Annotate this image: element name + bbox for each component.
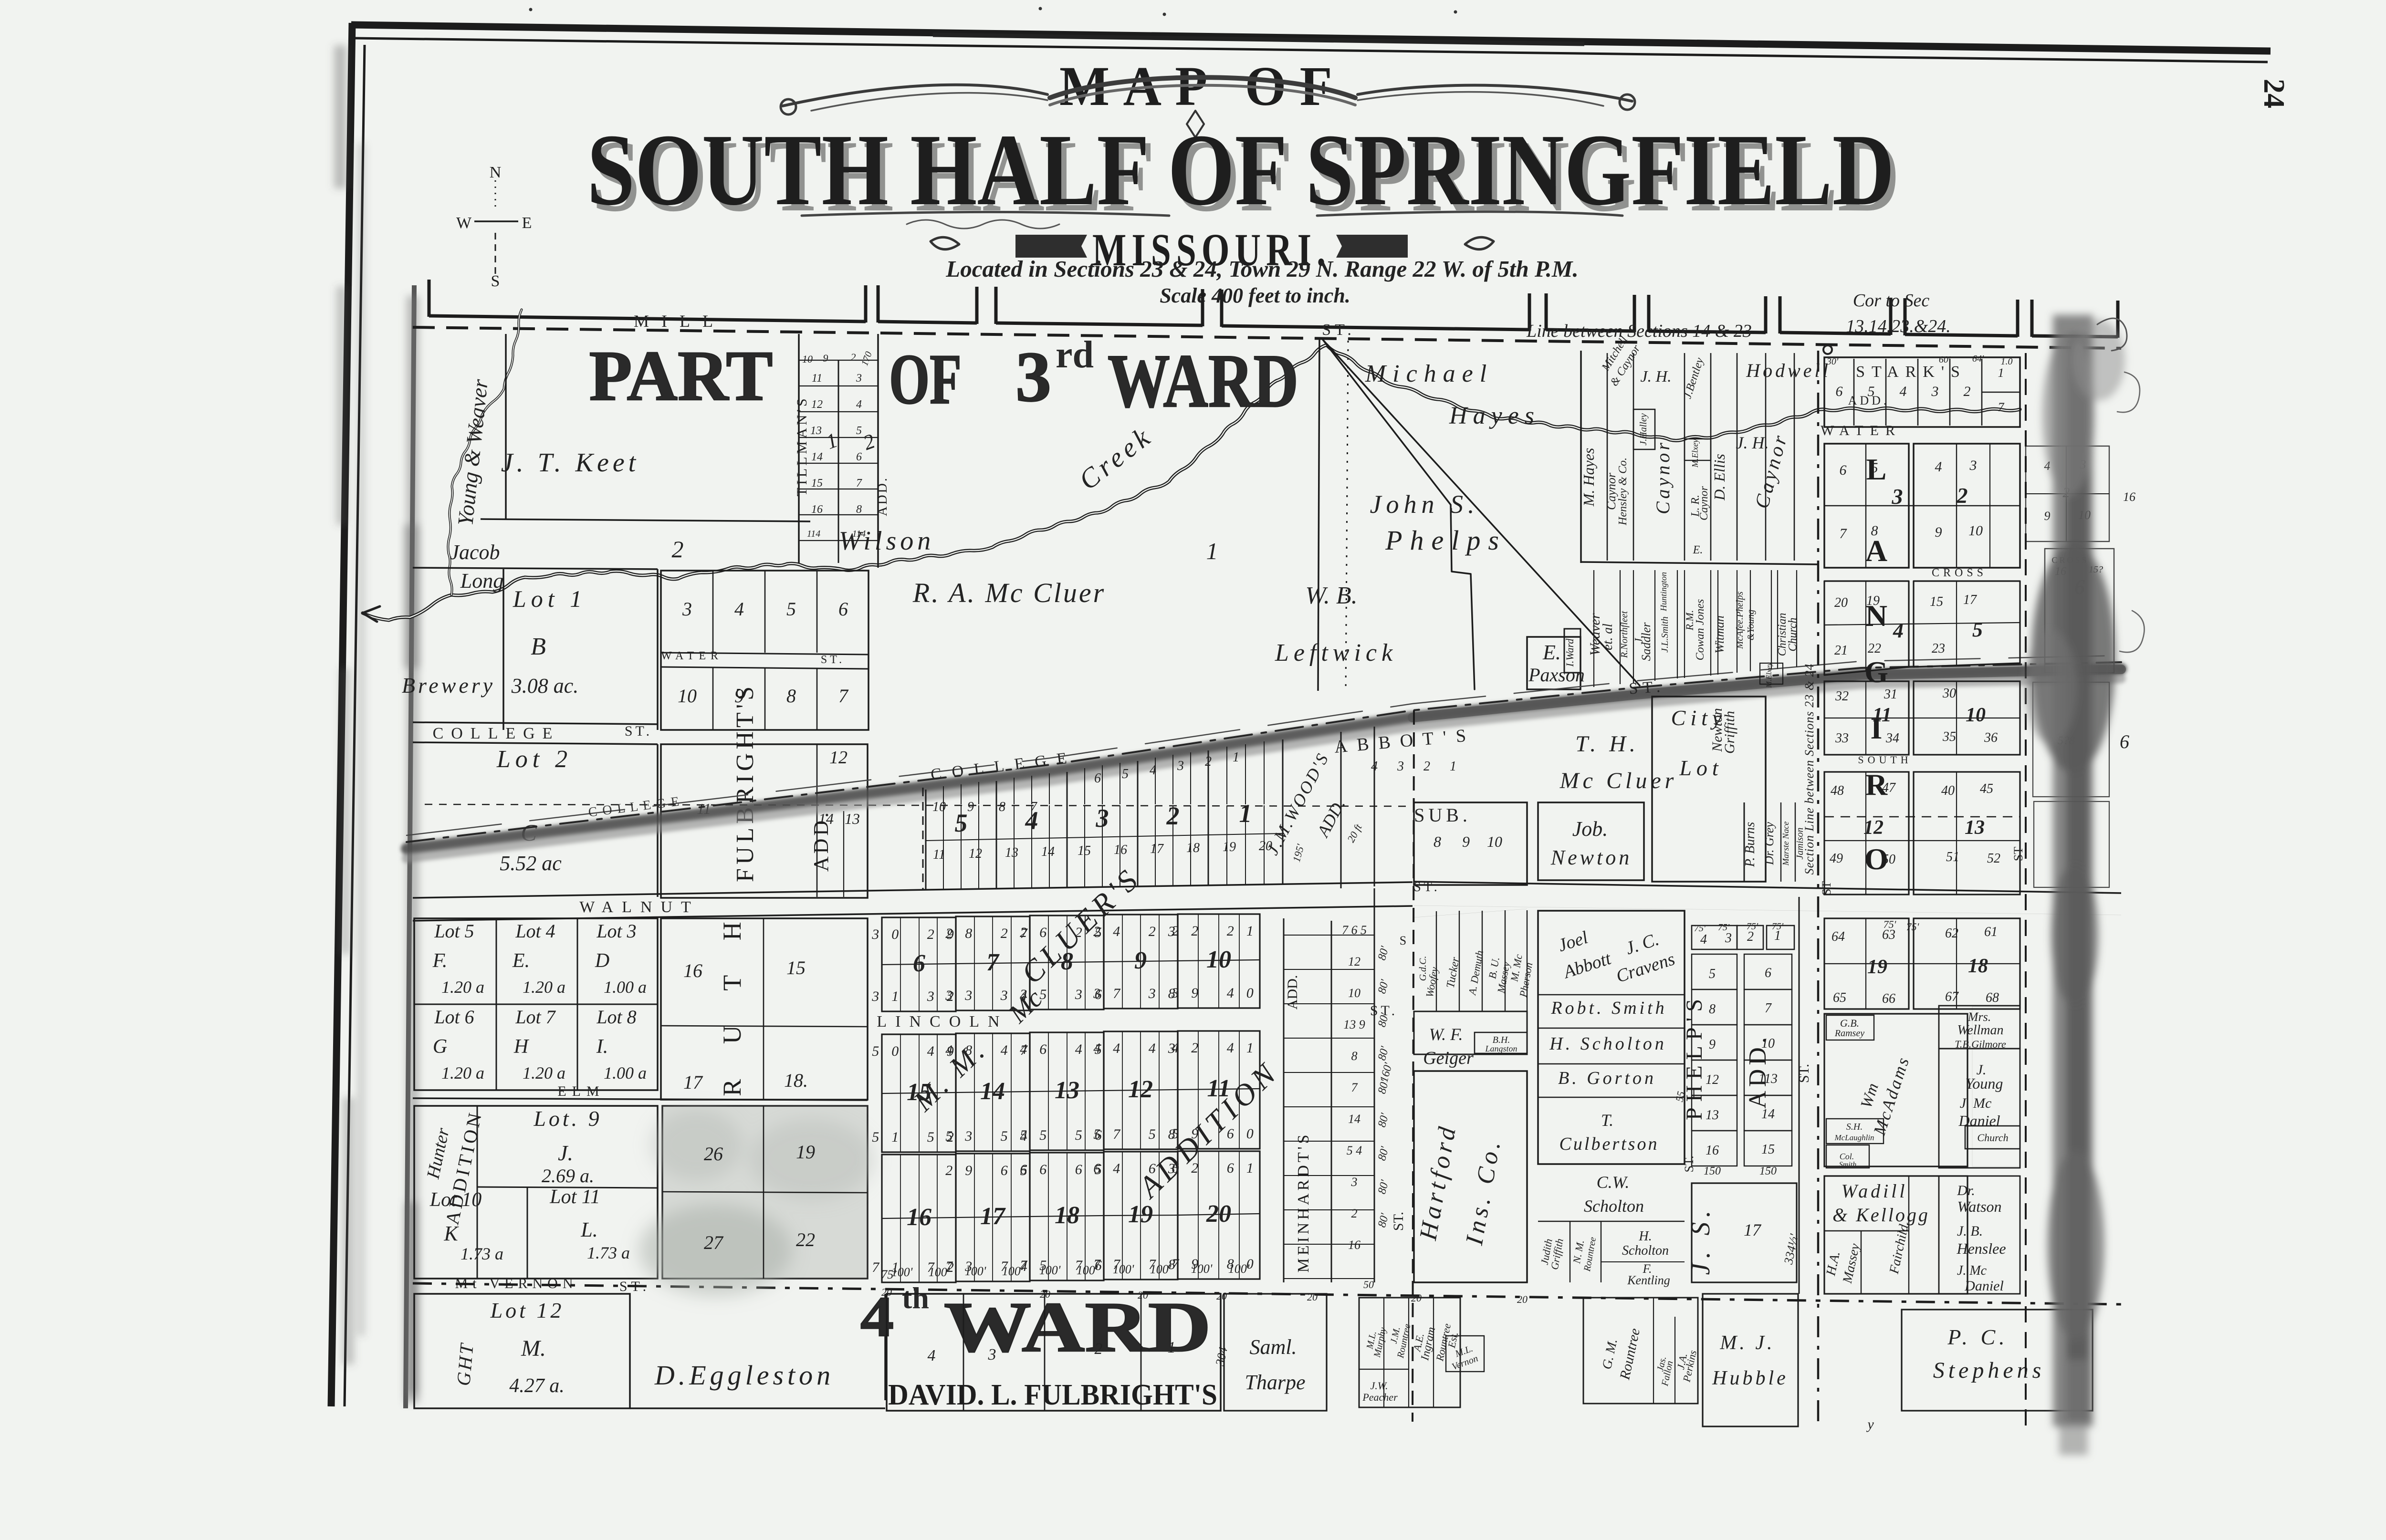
svg-text:G: G — [433, 1036, 447, 1058]
svg-text:27: 27 — [704, 1232, 724, 1253]
svg-text:Wellman: Wellman — [1957, 1023, 2004, 1038]
svg-text:9: 9 — [1935, 524, 1942, 540]
svg-text:R.Northfleet: R.Northfleet — [1619, 611, 1630, 658]
svg-text:20: 20 — [1517, 1293, 1528, 1305]
svg-text:Hensley & Co.: Hensley & Co. — [1617, 458, 1629, 526]
svg-text:Lot 2: Lot 2 — [496, 746, 572, 773]
svg-text:MILL: MILL — [634, 312, 725, 331]
svg-text:10: 10 — [1968, 523, 1983, 539]
svg-text:14: 14 — [811, 451, 823, 463]
svg-text:4: 4 — [1371, 759, 1378, 774]
svg-text:Kentling: Kentling — [1627, 1273, 1670, 1287]
svg-text:36: 36 — [1984, 730, 1998, 745]
svg-text:J. T. Keet: J. T. Keet — [501, 448, 639, 478]
svg-text:26: 26 — [704, 1143, 723, 1165]
svg-text:14: 14 — [1348, 1112, 1360, 1126]
svg-text:ST: ST — [1820, 881, 1833, 895]
svg-text:100': 100' — [1113, 1262, 1134, 1276]
svg-text:Col.: Col. — [1840, 1152, 1854, 1161]
svg-text:49: 49 — [1830, 851, 1843, 866]
svg-text:CROSS: CROSS — [1932, 567, 1987, 579]
svg-text:75': 75' — [1718, 922, 1730, 933]
svg-text:E.: E. — [1542, 641, 1561, 664]
svg-text:4: 4 — [1935, 459, 1942, 475]
svg-text:Dr.: Dr. — [1957, 1183, 1975, 1198]
svg-text:6: 6 — [1840, 462, 1847, 478]
svg-text:5: 5 — [1122, 767, 1129, 781]
svg-text:4: 4 — [856, 398, 862, 411]
svg-text:Cor to Sec: Cor to Sec — [1853, 291, 1930, 311]
svg-text:7: 7 — [838, 685, 849, 707]
svg-text:Mc Cluer: Mc Cluer — [1559, 768, 1678, 793]
svg-text:9: 9 — [1462, 833, 1470, 850]
svg-text:Lot 6: Lot 6 — [434, 1006, 474, 1028]
svg-text:6: 6 — [1094, 771, 1101, 786]
svg-text:75': 75' — [1906, 921, 1919, 933]
svg-text:2: 2 — [672, 536, 684, 562]
svg-text:9: 9 — [2044, 509, 2051, 523]
svg-text:ADD.: ADD. — [1744, 1033, 1771, 1109]
svg-text:8: 8 — [856, 503, 862, 516]
svg-text:10: 10 — [1966, 704, 1986, 726]
svg-text:TILLMAN'S: TILLMAN'S — [794, 395, 810, 496]
svg-text:&Young: &Young — [1746, 610, 1756, 641]
svg-text:Peacher: Peacher — [1362, 1391, 1398, 1403]
svg-text:ADD.: ADD. — [1285, 975, 1300, 1010]
svg-text:K: K — [443, 1222, 459, 1245]
svg-text:66: 66 — [1882, 991, 1895, 1006]
svg-text:J. Mc: J. Mc — [1957, 1263, 1987, 1278]
svg-text:8: 8 — [1434, 833, 1441, 850]
svg-text:1: 1 — [1450, 759, 1456, 774]
svg-text:16: 16 — [907, 1204, 931, 1231]
svg-text:ELM: ELM — [557, 1083, 605, 1099]
svg-text:4: 4 — [928, 1347, 936, 1364]
svg-text:D.Eggleston: D.Eggleston — [654, 1360, 834, 1391]
svg-text:E: E — [522, 214, 532, 232]
svg-text:Wadill: Wadill — [1842, 1180, 1908, 1202]
svg-text:Church: Church — [1787, 617, 1799, 651]
svg-text:5: 5 — [786, 598, 796, 620]
svg-text:ST.: ST. — [1796, 1064, 1812, 1083]
svg-text:SOUTH HALF OF SPRINGFIELD: SOUTH HALF OF SPRINGFIELD — [587, 113, 1894, 227]
svg-text:1: 1 — [1998, 366, 2004, 380]
svg-text:1.20 a: 1.20 a — [441, 1063, 484, 1082]
svg-text:McAfee.Phelps: McAfee.Phelps — [1735, 592, 1745, 650]
svg-text:1.20 a: 1.20 a — [523, 978, 565, 997]
svg-text:3: 3 — [1969, 458, 1977, 473]
svg-text:I.: I. — [596, 1036, 608, 1058]
svg-text:ST: ST — [2011, 847, 2025, 861]
svg-text:MEINHARDT'S: MEINHARDT'S — [1295, 1132, 1312, 1272]
svg-text:PART: PART — [589, 336, 773, 416]
svg-text:C.W.: C.W. — [1597, 1173, 1630, 1192]
svg-text:E.: E. — [1693, 544, 1703, 556]
svg-text:3: 3 — [988, 1346, 996, 1363]
svg-text:10: 10 — [678, 685, 697, 707]
svg-text:15: 15 — [1761, 1142, 1775, 1157]
svg-text:13: 13 — [810, 425, 822, 437]
svg-text:Young: Young — [1966, 1075, 2003, 1092]
svg-text:15: 15 — [811, 477, 823, 489]
svg-text:Culbertson: Culbertson — [1559, 1134, 1659, 1154]
svg-text:16: 16 — [2123, 490, 2135, 504]
svg-text:100': 100' — [1228, 1262, 1250, 1276]
svg-text:Jacob: Jacob — [450, 541, 500, 564]
svg-text:12: 12 — [1706, 1072, 1719, 1087]
svg-text:3: 3 — [1015, 337, 1051, 416]
svg-text:Lot 4: Lot 4 — [515, 920, 555, 942]
svg-text:ADD.: ADD. — [875, 476, 890, 516]
svg-text:19: 19 — [796, 1141, 815, 1163]
svg-text:GHT: GHT — [452, 1341, 478, 1387]
svg-text:M. J.: M. J. — [1719, 1332, 1775, 1354]
svg-text:5 4: 5 4 — [1347, 1144, 1362, 1157]
svg-text:17: 17 — [1963, 593, 1977, 607]
svg-text:61: 61 — [1984, 925, 1998, 939]
svg-text:7: 7 — [986, 949, 1000, 976]
svg-text:H: H — [513, 1036, 530, 1058]
svg-text:FULBRIGHT'S: FULBRIGHT'S — [732, 683, 759, 882]
svg-text:64: 64 — [1831, 929, 1845, 944]
svg-text:2: 2 — [1957, 483, 1968, 508]
svg-text:7: 7 — [1998, 400, 2005, 414]
svg-text:John S.: John S. — [1370, 490, 1479, 519]
svg-text:H.: H. — [1638, 1229, 1652, 1244]
svg-text:6: 6 — [1836, 384, 1843, 399]
svg-text:G: G — [1864, 655, 1888, 689]
svg-text:42 41: 42 41 — [1172, 1040, 1266, 1056]
svg-text:6: 6 — [913, 950, 925, 977]
svg-text:Scale 400 feet to inch.: Scale 400 feet to inch. — [1160, 284, 1350, 307]
svg-text:WARD: WARD — [1108, 338, 1298, 423]
svg-text:22: 22 — [1868, 641, 1881, 656]
svg-text:12: 12 — [829, 748, 848, 768]
svg-text:Hodwell: Hodwell — [1746, 360, 1831, 381]
svg-text:Mrs.: Mrs. — [1967, 1010, 1991, 1024]
svg-text:2: 2 — [1423, 759, 1430, 774]
svg-text:51: 51 — [1946, 850, 1959, 864]
svg-text:WALNUT: WALNUT — [579, 898, 700, 916]
svg-text:5: 5 — [1709, 967, 1716, 981]
svg-text:9: 9 — [823, 352, 828, 364]
svg-text:Henslee: Henslee — [1956, 1240, 2006, 1257]
svg-text:Lot 1: Lot 1 — [513, 585, 586, 612]
svg-text:Scholton: Scholton — [1622, 1243, 1669, 1258]
svg-text:Dr. Grey: Dr. Grey — [1762, 822, 1776, 865]
svg-text:Lot 8: Lot 8 — [596, 1006, 636, 1028]
svg-text:35: 35 — [1942, 729, 1956, 744]
svg-text:10: 10 — [1348, 986, 1360, 1000]
svg-text:68: 68 — [1986, 990, 1999, 1005]
svg-text:B. Gorton: B. Gorton — [1558, 1068, 1656, 1088]
svg-text:30: 30 — [1942, 686, 1956, 701]
svg-text:9: 9 — [1134, 947, 1147, 974]
svg-text:Watson: Watson — [1957, 1198, 2001, 1215]
svg-text:75': 75' — [1694, 923, 1706, 934]
svg-text:R. A. Mc Cluer: R. A. Mc Cluer — [912, 577, 1106, 608]
svg-text:114: 114 — [807, 529, 821, 539]
svg-text:100': 100' — [965, 1264, 986, 1278]
svg-text:1.0: 1.0 — [2001, 356, 2013, 367]
svg-text:2: 2 — [1205, 754, 1212, 769]
svg-text:Lot 11: Lot 11 — [549, 1186, 600, 1208]
svg-text:Line between Sections 14 & 23: Line between Sections 14 & 23 — [1526, 321, 1752, 341]
svg-text:B: B — [531, 633, 546, 660]
svg-text:P. Burns: P. Burns — [1743, 822, 1758, 867]
svg-text:1.73 a: 1.73 a — [460, 1244, 503, 1263]
svg-text:4: 4 — [1893, 619, 1904, 642]
svg-text:ST.: ST. — [1322, 321, 1355, 339]
svg-text:J. Mc: J. Mc — [1960, 1095, 1992, 1111]
svg-text:150: 150 — [1704, 1165, 1721, 1177]
svg-text:34: 34 — [1885, 731, 1899, 746]
svg-text:Leftwick: Leftwick — [1275, 639, 1397, 666]
svg-text:I.Ward: I.Ward — [1564, 638, 1576, 667]
svg-text:17: 17 — [683, 1072, 703, 1093]
svg-text:3: 3 — [1931, 384, 1939, 399]
svg-text:12: 12 — [811, 398, 823, 411]
svg-text:16: 16 — [1348, 1238, 1360, 1252]
svg-text:39 40: 39 40 — [1171, 985, 1266, 1001]
svg-text:1.00 a: 1.00 a — [604, 978, 647, 997]
svg-text:2: 2 — [1095, 1340, 1103, 1358]
svg-text:S.H.: S.H. — [1846, 1122, 1863, 1132]
svg-text:ADD.: ADD. — [809, 810, 833, 872]
svg-text:23: 23 — [1932, 641, 1945, 656]
svg-text:52: 52 — [1987, 851, 2000, 866]
svg-text:7: 7 — [856, 477, 862, 489]
svg-text:7 6 5: 7 6 5 — [1342, 923, 1367, 937]
svg-text:18.: 18. — [784, 1070, 808, 1091]
svg-text:13: 13 — [1005, 845, 1018, 860]
svg-text:22: 22 — [796, 1229, 815, 1250]
svg-text:Located in Sections 23 & 24, T: Located in Sections 23 & 24, Town 29 N. … — [945, 256, 1578, 282]
svg-text:Lot 10: Lot 10 — [429, 1189, 482, 1211]
svg-text:4: 4 — [1900, 384, 1907, 399]
svg-text:Caynor: Caynor — [1698, 486, 1710, 520]
svg-text:67: 67 — [1945, 989, 1959, 1004]
svg-text:et. al: et. al — [1601, 624, 1615, 650]
svg-text:14: 14 — [1041, 844, 1055, 859]
svg-text:STARK'S: STARK'S — [1856, 363, 1967, 381]
svg-text:12: 12 — [1348, 955, 1360, 968]
svg-text:2: 2 — [851, 351, 856, 363]
svg-text:13.14.23.&24.: 13.14.23.&24. — [1846, 316, 1951, 336]
svg-text:60': 60' — [1939, 354, 1951, 365]
svg-text:100': 100' — [1191, 1262, 1213, 1276]
svg-text:64': 64' — [1972, 354, 1984, 364]
svg-text:y: y — [1866, 1416, 1874, 1432]
svg-text:ST.: ST. — [625, 723, 652, 739]
svg-text:100': 100' — [1039, 1263, 1061, 1277]
svg-text:W: W — [456, 214, 472, 232]
svg-text:N: N — [1865, 599, 1887, 633]
svg-text:1: 1 — [1206, 538, 1218, 564]
svg-text:100': 100' — [1150, 1262, 1172, 1276]
svg-text:L: L — [1866, 452, 1887, 486]
svg-text:20: 20 — [1216, 1290, 1227, 1302]
svg-text:7: 7 — [1351, 1081, 1358, 1094]
svg-text:2: 2 — [1351, 1207, 1358, 1220]
svg-text:3: 3 — [856, 372, 862, 385]
svg-text:E.: E. — [512, 950, 530, 972]
svg-text:1.20 a: 1.20 a — [441, 978, 484, 997]
svg-text:J. H.: J. H. — [1640, 368, 1671, 385]
svg-text:A: A — [1865, 534, 1887, 568]
svg-text:COLLEGE: COLLEGE — [433, 725, 560, 742]
svg-text:6: 6 — [838, 598, 848, 620]
svg-text:Church: Church — [1977, 1132, 2008, 1144]
svg-text:19: 19 — [1128, 1201, 1153, 1228]
svg-text:Langston: Langston — [1485, 1044, 1517, 1053]
svg-text:5: 5 — [1868, 384, 1875, 399]
svg-text:Caynor: Caynor — [1652, 440, 1674, 514]
svg-text:150: 150 — [1759, 1165, 1777, 1177]
svg-text:8: 8 — [999, 800, 1005, 814]
svg-text:H. Scholton: H. Scholton — [1549, 1034, 1666, 1054]
svg-text:20: 20 — [1307, 1291, 1318, 1303]
svg-text:F.: F. — [432, 950, 448, 972]
svg-text:3: 3 — [1177, 759, 1184, 773]
svg-text:Saddler: Saddler — [1639, 622, 1653, 661]
svg-text:6: 6 — [1765, 966, 1771, 980]
svg-text:Phelps: Phelps — [1385, 525, 1507, 556]
svg-text:Robt. Smith: Robt. Smith — [1550, 998, 1667, 1018]
svg-text:ST.: ST. — [1682, 1156, 1696, 1173]
svg-text:R: R — [1865, 768, 1888, 801]
svg-text:17: 17 — [1744, 1220, 1762, 1239]
svg-text:rd: rd — [1056, 334, 1094, 376]
svg-text:75': 75' — [1884, 918, 1896, 930]
svg-text:Huntington: Huntington — [1659, 572, 1668, 612]
svg-text:19: 19 — [1867, 956, 1887, 978]
svg-text:5.52 ac: 5.52 ac — [500, 852, 562, 875]
svg-text:Newton: Newton — [1550, 846, 1632, 869]
svg-text:Hayes: Hayes — [1449, 402, 1540, 429]
svg-text:3: 3 — [1351, 1175, 1358, 1189]
svg-text:Daniel: Daniel — [1958, 1112, 2000, 1129]
svg-text:P. C.: P. C. — [1947, 1325, 2008, 1349]
svg-text:D: D — [595, 950, 609, 972]
svg-text:1.00 a: 1.00 a — [604, 1063, 647, 1082]
svg-text:114: 114 — [852, 529, 866, 539]
svg-text:L.: L. — [580, 1218, 597, 1241]
svg-text:Hubble: Hubble — [1712, 1367, 1789, 1389]
svg-text:W. F.: W. F. — [1429, 1025, 1463, 1044]
svg-text:WATER: WATER — [1821, 423, 1902, 438]
svg-text:ST.: ST. — [821, 654, 845, 666]
svg-text:Scholton: Scholton — [1584, 1197, 1644, 1216]
svg-text:30': 30' — [1826, 356, 1839, 367]
svg-text:12: 12 — [1128, 1076, 1153, 1103]
svg-text:Geiger: Geiger — [1423, 1048, 1474, 1068]
svg-text:11: 11 — [812, 372, 822, 385]
svg-text:Long: Long — [460, 569, 503, 593]
svg-text:100': 100' — [929, 1265, 950, 1279]
svg-text:24: 24 — [2258, 79, 2290, 108]
svg-text:1.20 a: 1.20 a — [523, 1063, 565, 1082]
svg-text:G.B.: G.B. — [1840, 1017, 1859, 1029]
svg-text:17: 17 — [980, 1203, 1006, 1230]
svg-text:10: 10 — [1487, 833, 1502, 850]
svg-text:40: 40 — [1941, 783, 1955, 798]
svg-text:PHELP'S: PHELP'S — [1682, 993, 1707, 1120]
svg-text:3: 3 — [1725, 931, 1732, 946]
svg-text:13 9: 13 9 — [1343, 1018, 1365, 1031]
svg-text:LINCOLN: LINCOLN — [877, 1013, 1008, 1030]
svg-text:1.73 a: 1.73 a — [587, 1243, 630, 1262]
svg-text:Daniel: Daniel — [1964, 1278, 2004, 1294]
svg-text:9: 9 — [967, 800, 974, 814]
svg-text:Saml.: Saml. — [1250, 1335, 1297, 1359]
svg-text:100': 100' — [1077, 1263, 1098, 1277]
svg-text:18: 18 — [1968, 955, 1988, 977]
svg-text:Marste Nace: Marste Nace — [1781, 822, 1790, 866]
svg-text:3: 3 — [1892, 484, 1903, 509]
svg-text:OF: OF — [889, 340, 962, 419]
svg-text:3.08 ac.: 3.08 ac. — [511, 674, 579, 697]
svg-text:2.69 a.: 2.69 a. — [542, 1165, 594, 1186]
svg-text:ST.: ST. — [1391, 1212, 1406, 1231]
svg-text:1: 1 — [1233, 750, 1239, 765]
svg-text:45: 45 — [1980, 781, 1993, 796]
svg-text:S: S — [491, 272, 500, 290]
svg-text:75': 75' — [1747, 921, 1758, 932]
svg-text:J.: J. — [558, 1141, 573, 1165]
svg-text:4.27 a.: 4.27 a. — [509, 1375, 565, 1397]
svg-text:Paxson: Paxson — [1528, 664, 1585, 686]
svg-text:M.: M. — [521, 1336, 546, 1361]
svg-text:12: 12 — [1863, 817, 1884, 839]
svg-text:Caynor: Caynor — [1604, 472, 1618, 510]
svg-text:ST.: ST. — [1413, 880, 1440, 895]
svg-text:12: 12 — [969, 846, 982, 861]
svg-text:17: 17 — [1150, 842, 1164, 856]
svg-text:S: S — [1400, 934, 1406, 947]
svg-text:19: 19 — [1223, 840, 1236, 854]
svg-text:Lot 12: Lot 12 — [490, 1298, 565, 1322]
svg-text:Smith: Smith — [1839, 1161, 1856, 1169]
svg-text:Brewery: Brewery — [402, 673, 495, 697]
svg-text:18: 18 — [1186, 841, 1200, 855]
svg-text:6: 6 — [856, 451, 862, 463]
svg-text:21: 21 — [1834, 643, 1848, 658]
svg-text:31: 31 — [1884, 687, 1897, 702]
svg-text:J.W.: J.W. — [1370, 1380, 1388, 1392]
svg-text:79 80: 79 80 — [1172, 1256, 1266, 1272]
svg-text:M.Elxey: M.Elxey — [1765, 662, 1773, 688]
svg-text:N: N — [490, 164, 502, 181]
svg-text:75': 75' — [1772, 921, 1784, 932]
svg-text:O: O — [1864, 842, 1888, 876]
svg-text:13: 13 — [1706, 1108, 1719, 1123]
svg-text:McLaughlin: McLaughlin — [1834, 1133, 1874, 1142]
svg-text:4: 4 — [734, 598, 744, 620]
svg-text:16: 16 — [1706, 1143, 1719, 1158]
svg-text:32: 32 — [1835, 689, 1849, 704]
svg-text:7: 7 — [1765, 1001, 1772, 1016]
svg-text:& Kellogg: & Kellogg — [1832, 1204, 1930, 1226]
svg-text:13: 13 — [1055, 1077, 1079, 1104]
svg-text:16: 16 — [683, 960, 702, 981]
svg-text:1: 1 — [1168, 1339, 1176, 1356]
svg-text:5: 5 — [1972, 618, 1983, 641]
svg-text:Lot 7: Lot 7 — [515, 1006, 556, 1028]
svg-text:8: 8 — [1351, 1049, 1358, 1063]
svg-text:20: 20 — [1834, 595, 1848, 610]
svg-text:J. H.: J. H. — [1736, 433, 1769, 452]
